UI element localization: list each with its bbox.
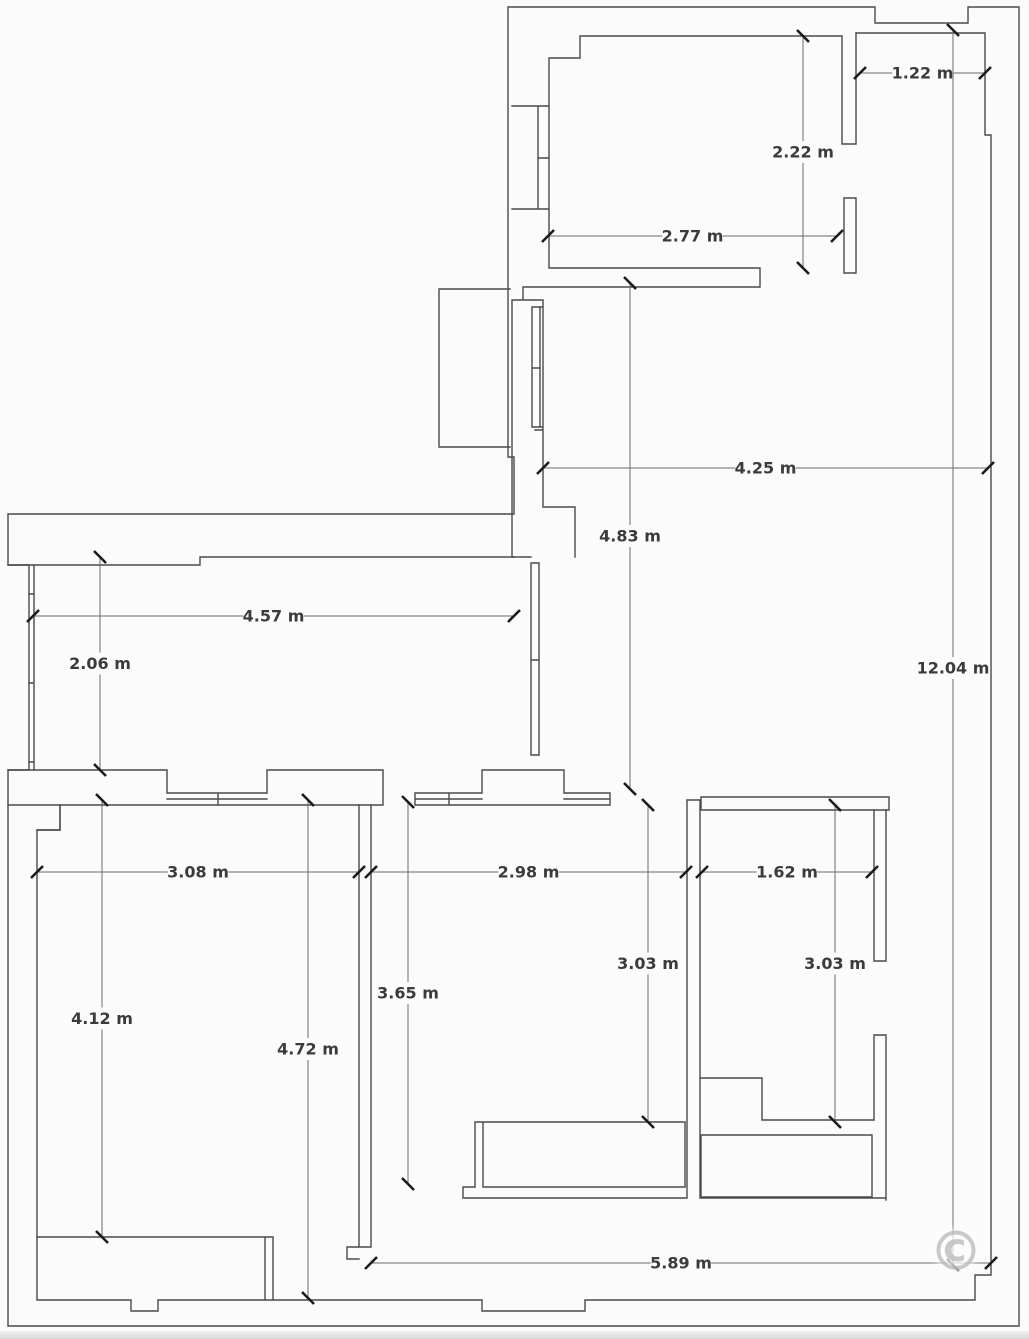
dimension-3-03-m: 3.03 m — [804, 799, 866, 1128]
dimension-label: 4.12 m — [71, 1009, 133, 1028]
floor-plan: 1.22 m2.22 m2.77 m4.25 m4.83 m4.57 m2.06… — [0, 0, 1029, 1339]
dimension-4-12-m: 4.12 m — [71, 794, 133, 1243]
dimension-4-83-m: 4.83 m — [599, 277, 661, 795]
dimension-3-65-m: 3.65 m — [377, 796, 439, 1190]
exterior-walls — [8, 7, 1019, 1326]
dimension-3-03-m: 3.03 m — [617, 799, 679, 1128]
dimension-label: 2.98 m — [498, 863, 560, 882]
dimension-label: 4.72 m — [277, 1040, 339, 1059]
window-band-walls — [8, 770, 889, 810]
image-bottom-edge — [0, 1331, 1029, 1339]
dimension-label: 1.22 m — [892, 64, 954, 83]
dimension-label: 3.03 m — [804, 954, 866, 973]
dimension-2-22-m: 2.22 m — [772, 30, 834, 274]
dimension-label: 3.08 m — [167, 863, 229, 882]
dimension-2-98-m: 2.98 m — [365, 861, 692, 883]
dimension-4-25-m: 4.25 m — [537, 457, 994, 479]
dimension-label: 2.77 m — [662, 227, 724, 246]
dimension-label: 2.22 m — [772, 143, 834, 162]
dimension-4-72-m: 4.72 m — [277, 794, 339, 1304]
dimension-label: 2.06 m — [69, 654, 131, 673]
dimension-2-06-m: 2.06 m — [69, 551, 131, 776]
dimension-2-77-m: 2.77 m — [542, 225, 843, 247]
dimension-label: 12.04 m — [917, 659, 990, 678]
dimension-layer: 1.22 m2.22 m2.77 m4.25 m4.83 m4.57 m2.06… — [27, 24, 997, 1304]
copyright-watermark: © — [926, 1222, 986, 1282]
floor-plan-canvas: 1.22 m2.22 m2.77 m4.25 m4.83 m4.57 m2.06… — [0, 0, 1029, 1339]
dimension-3-08-m: 3.08 m — [31, 861, 365, 883]
dimension-4-57-m: 4.57 m — [27, 605, 520, 627]
dimension-label: 4.25 m — [735, 459, 797, 478]
dimension-label: 3.65 m — [377, 984, 439, 1003]
dimension-label: 1.62 m — [756, 863, 818, 882]
dimension-12-04-m: 12.04 m — [917, 24, 990, 1271]
dimension-label: 4.83 m — [599, 527, 661, 546]
dimension-label: 5.89 m — [650, 1254, 712, 1273]
dimension-label: 3.03 m — [617, 954, 679, 973]
dimension-1-22-m: 1.22 m — [854, 62, 991, 84]
dimension-label: 4.57 m — [243, 607, 305, 626]
dimension-1-62-m: 1.62 m — [696, 861, 878, 883]
dimension-5-89-m: 5.89 m — [365, 1252, 997, 1274]
